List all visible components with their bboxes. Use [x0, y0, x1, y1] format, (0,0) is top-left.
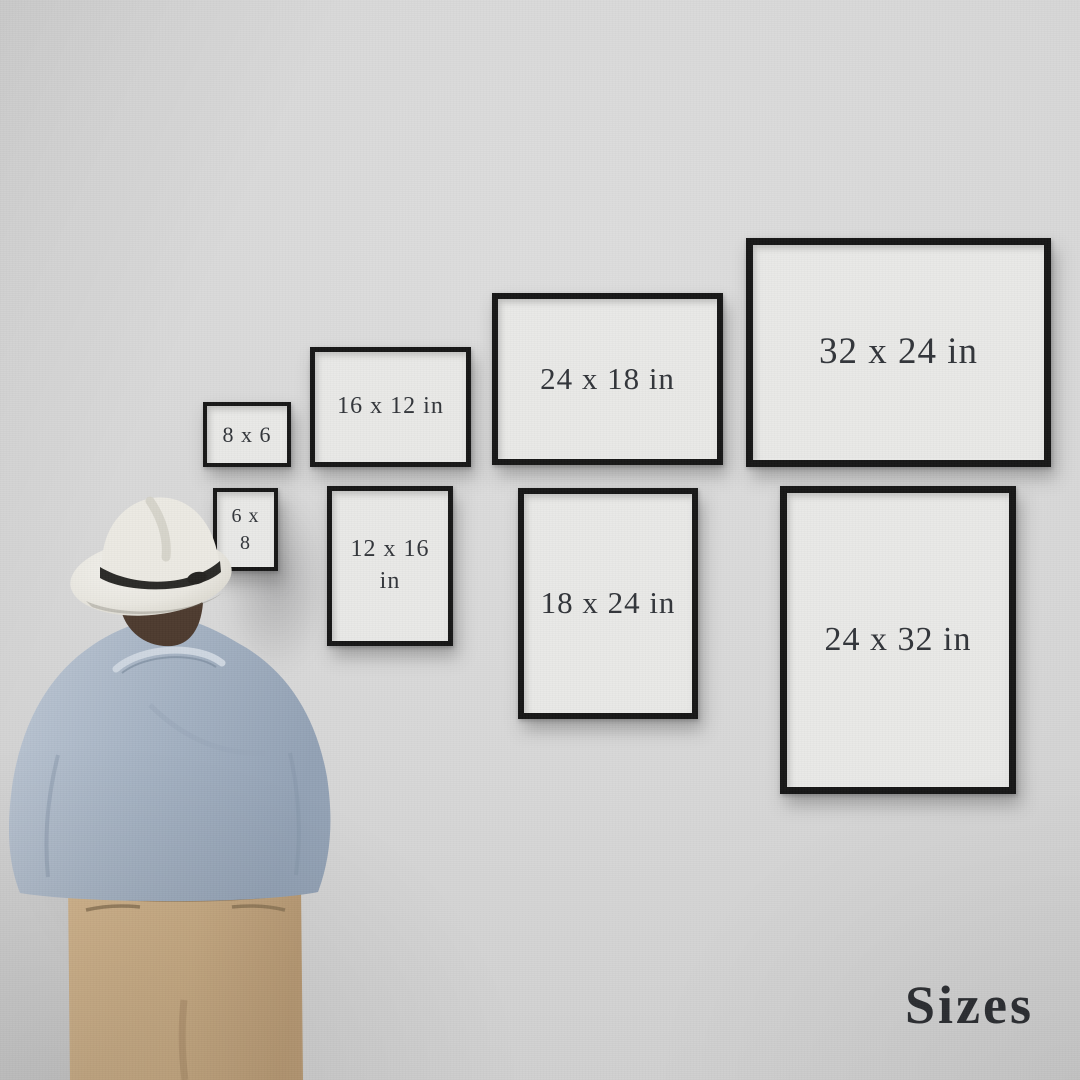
size-label: 18 x 24 in — [533, 583, 684, 624]
size-label: 24 x 32 in — [817, 618, 980, 663]
size-frame-16x12: 16 x 12 in — [310, 347, 471, 467]
man-figure — [0, 455, 345, 1080]
page-title: Sizes — [905, 974, 1034, 1036]
size-label: 16 x 12 in — [329, 391, 452, 423]
mockup-scene: 8 x 6 16 x 12 in 24 x 18 in 32 x 24 in 6… — [0, 0, 1080, 1080]
size-frame-24x18: 24 x 18 in — [492, 293, 723, 465]
size-frame-18x24: 18 x 24 in — [518, 488, 698, 719]
size-label: 8 x 6 — [215, 420, 280, 449]
size-frame-12x16: 12 x 16 in — [327, 486, 453, 646]
size-label: 32 x 24 in — [811, 328, 986, 377]
pants-leg-crease — [182, 1000, 185, 1080]
size-frame-32x24: 32 x 24 in — [746, 238, 1051, 467]
size-label: 24 x 18 in — [532, 359, 683, 400]
size-label: 12 x 16 in — [332, 534, 448, 597]
size-frame-24x32: 24 x 32 in — [780, 486, 1016, 794]
fedora-hat — [66, 497, 235, 623]
